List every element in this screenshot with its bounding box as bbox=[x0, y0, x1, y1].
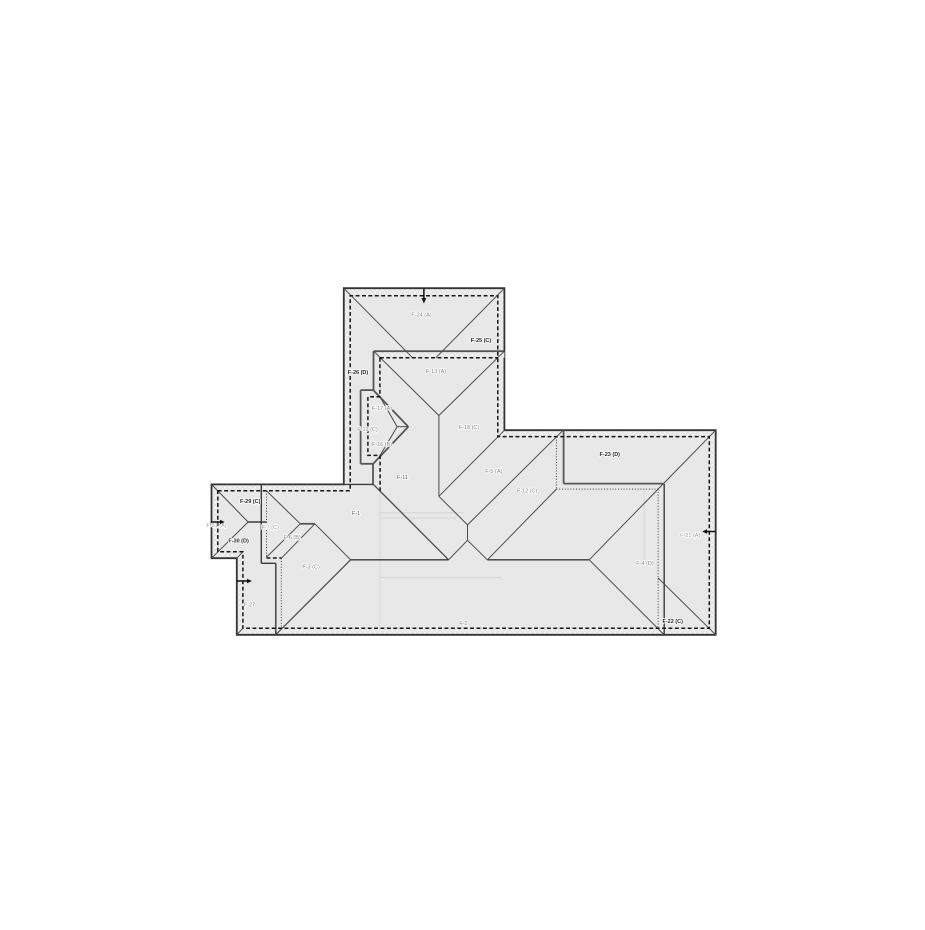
svg-text:F-31 (A): F-31 (A) bbox=[206, 523, 226, 529]
svg-text:F-26 (D): F-26 (D) bbox=[348, 370, 369, 376]
svg-text:F-13 (A): F-13 (A) bbox=[426, 369, 446, 375]
svg-text:F-29 (C): F-29 (C) bbox=[240, 499, 261, 505]
svg-text:F-23 (D): F-23 (D) bbox=[600, 452, 621, 458]
svg-text:F-16 (B): F-16 (B) bbox=[372, 442, 392, 448]
svg-text:F-17 (A): F-17 (A) bbox=[372, 406, 392, 412]
svg-text:F-5 (A): F-5 (A) bbox=[485, 469, 502, 475]
svg-text:F-22 (C): F-22 (C) bbox=[662, 619, 683, 625]
svg-text:F-11: F-11 bbox=[397, 475, 408, 481]
svg-text:F-19 (C): F-19 (C) bbox=[357, 427, 378, 433]
svg-text:F-3 (C): F-3 (C) bbox=[302, 565, 320, 571]
svg-text:F-25 (C): F-25 (C) bbox=[471, 338, 492, 344]
svg-text:F-1: F-1 bbox=[352, 511, 360, 517]
svg-text:F-6 (B): F-6 (B) bbox=[284, 535, 301, 541]
svg-text:F-4 (D): F-4 (D) bbox=[636, 561, 654, 567]
svg-text:F-30 (D): F-30 (D) bbox=[228, 538, 249, 544]
svg-text:F-18 (C): F-18 (C) bbox=[459, 425, 480, 431]
svg-text:F-24 (A): F-24 (A) bbox=[411, 313, 431, 319]
svg-text:F-21 (A): F-21 (A) bbox=[680, 533, 700, 539]
svg-text:F-7 (C): F-7 (C) bbox=[261, 525, 279, 531]
svg-text:F-12 (C): F-12 (C) bbox=[517, 489, 538, 495]
svg-text:F-27: F-27 bbox=[244, 603, 255, 609]
svg-text:F-2: F-2 bbox=[459, 621, 467, 627]
